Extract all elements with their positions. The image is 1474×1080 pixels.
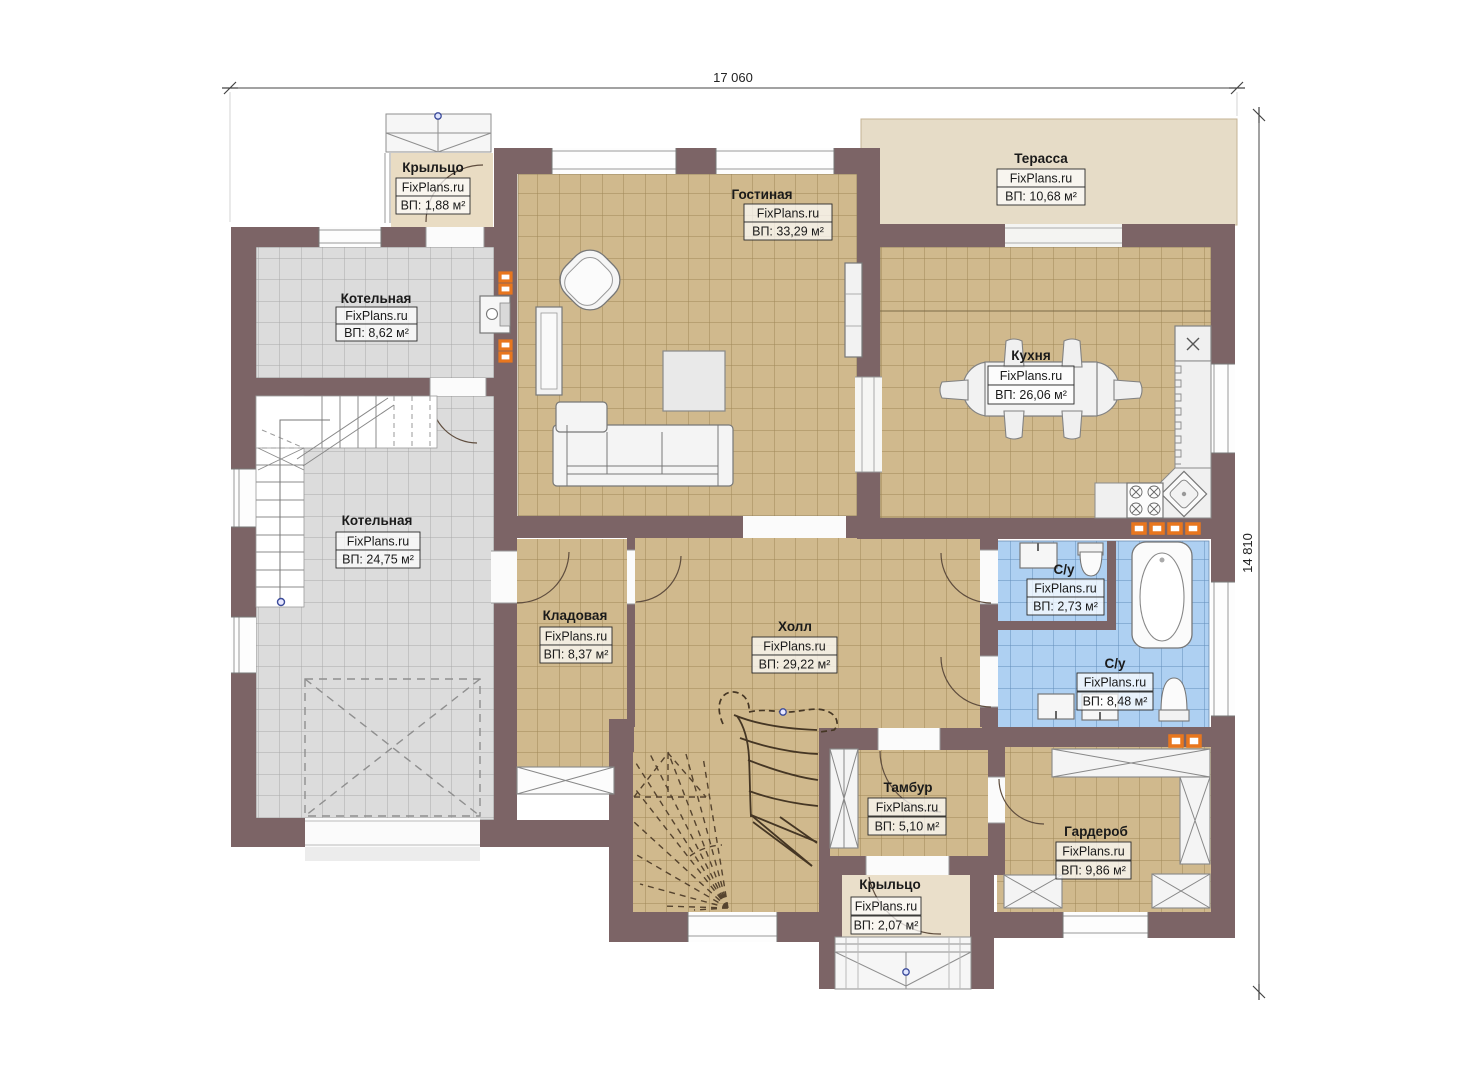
svg-text:Тамбур: Тамбур: [884, 780, 933, 795]
svg-text:Кухня: Кухня: [1011, 348, 1050, 363]
svg-text:Котельная: Котельная: [342, 513, 413, 528]
svg-text:ВП: 29,22 м²: ВП: 29,22 м²: [759, 658, 831, 672]
svg-text:Гардероб: Гардероб: [1064, 824, 1128, 839]
svg-text:FixPlans.ru: FixPlans.ru: [1034, 582, 1097, 596]
svg-text:Кладовая: Кладовая: [543, 608, 608, 623]
svg-text:ВП: 10,68 м²: ВП: 10,68 м²: [1005, 190, 1077, 204]
svg-text:С/у: С/у: [1053, 562, 1075, 577]
svg-text:FixPlans.ru: FixPlans.ru: [545, 630, 608, 644]
svg-text:Холл: Холл: [778, 619, 812, 634]
svg-text:FixPlans.ru: FixPlans.ru: [345, 309, 408, 323]
svg-text:FixPlans.ru: FixPlans.ru: [757, 207, 820, 221]
svg-text:FixPlans.ru: FixPlans.ru: [1062, 845, 1125, 859]
svg-text:FixPlans.ru: FixPlans.ru: [1010, 172, 1073, 186]
svg-text:FixPlans.ru: FixPlans.ru: [347, 535, 410, 549]
svg-text:14 810: 14 810: [1240, 533, 1255, 573]
svg-text:Котельная: Котельная: [341, 291, 412, 306]
svg-text:Терасса: Терасса: [1014, 151, 1068, 166]
svg-text:ВП: 2,73 м²: ВП: 2,73 м²: [1033, 600, 1098, 614]
svg-text:Крыльцо: Крыльцо: [402, 160, 463, 175]
svg-text:ВП: 9,86 м²: ВП: 9,86 м²: [1061, 864, 1126, 878]
svg-text:ВП: 2,07 м²: ВП: 2,07 м²: [854, 919, 919, 933]
svg-text:FixPlans.ru: FixPlans.ru: [855, 900, 918, 914]
svg-text:ВП: 24,75 м²: ВП: 24,75 м²: [342, 553, 414, 567]
svg-text:ВП: 26,06 м²: ВП: 26,06 м²: [995, 388, 1067, 402]
svg-text:Гостиная: Гостиная: [731, 187, 792, 202]
svg-text:FixPlans.ru: FixPlans.ru: [876, 801, 939, 815]
svg-text:С/у: С/у: [1104, 656, 1126, 671]
svg-text:Крыльцо: Крыльцо: [859, 877, 920, 892]
svg-text:17 060: 17 060: [713, 70, 753, 85]
svg-text:FixPlans.ru: FixPlans.ru: [1084, 676, 1147, 690]
svg-text:ВП: 8,37 м²: ВП: 8,37 м²: [544, 648, 609, 662]
svg-text:FixPlans.ru: FixPlans.ru: [1000, 369, 1063, 383]
svg-text:ВП: 5,10 м²: ВП: 5,10 м²: [875, 820, 940, 834]
svg-text:FixPlans.ru: FixPlans.ru: [402, 181, 465, 195]
svg-text:FixPlans.ru: FixPlans.ru: [763, 640, 826, 654]
svg-text:ВП: 8,62 м²: ВП: 8,62 м²: [344, 326, 409, 340]
svg-text:ВП: 33,29 м²: ВП: 33,29 м²: [752, 225, 824, 239]
svg-text:ВП: 8,48 м²: ВП: 8,48 м²: [1083, 695, 1148, 709]
svg-text:ВП: 1,88 м²: ВП: 1,88 м²: [401, 199, 466, 213]
